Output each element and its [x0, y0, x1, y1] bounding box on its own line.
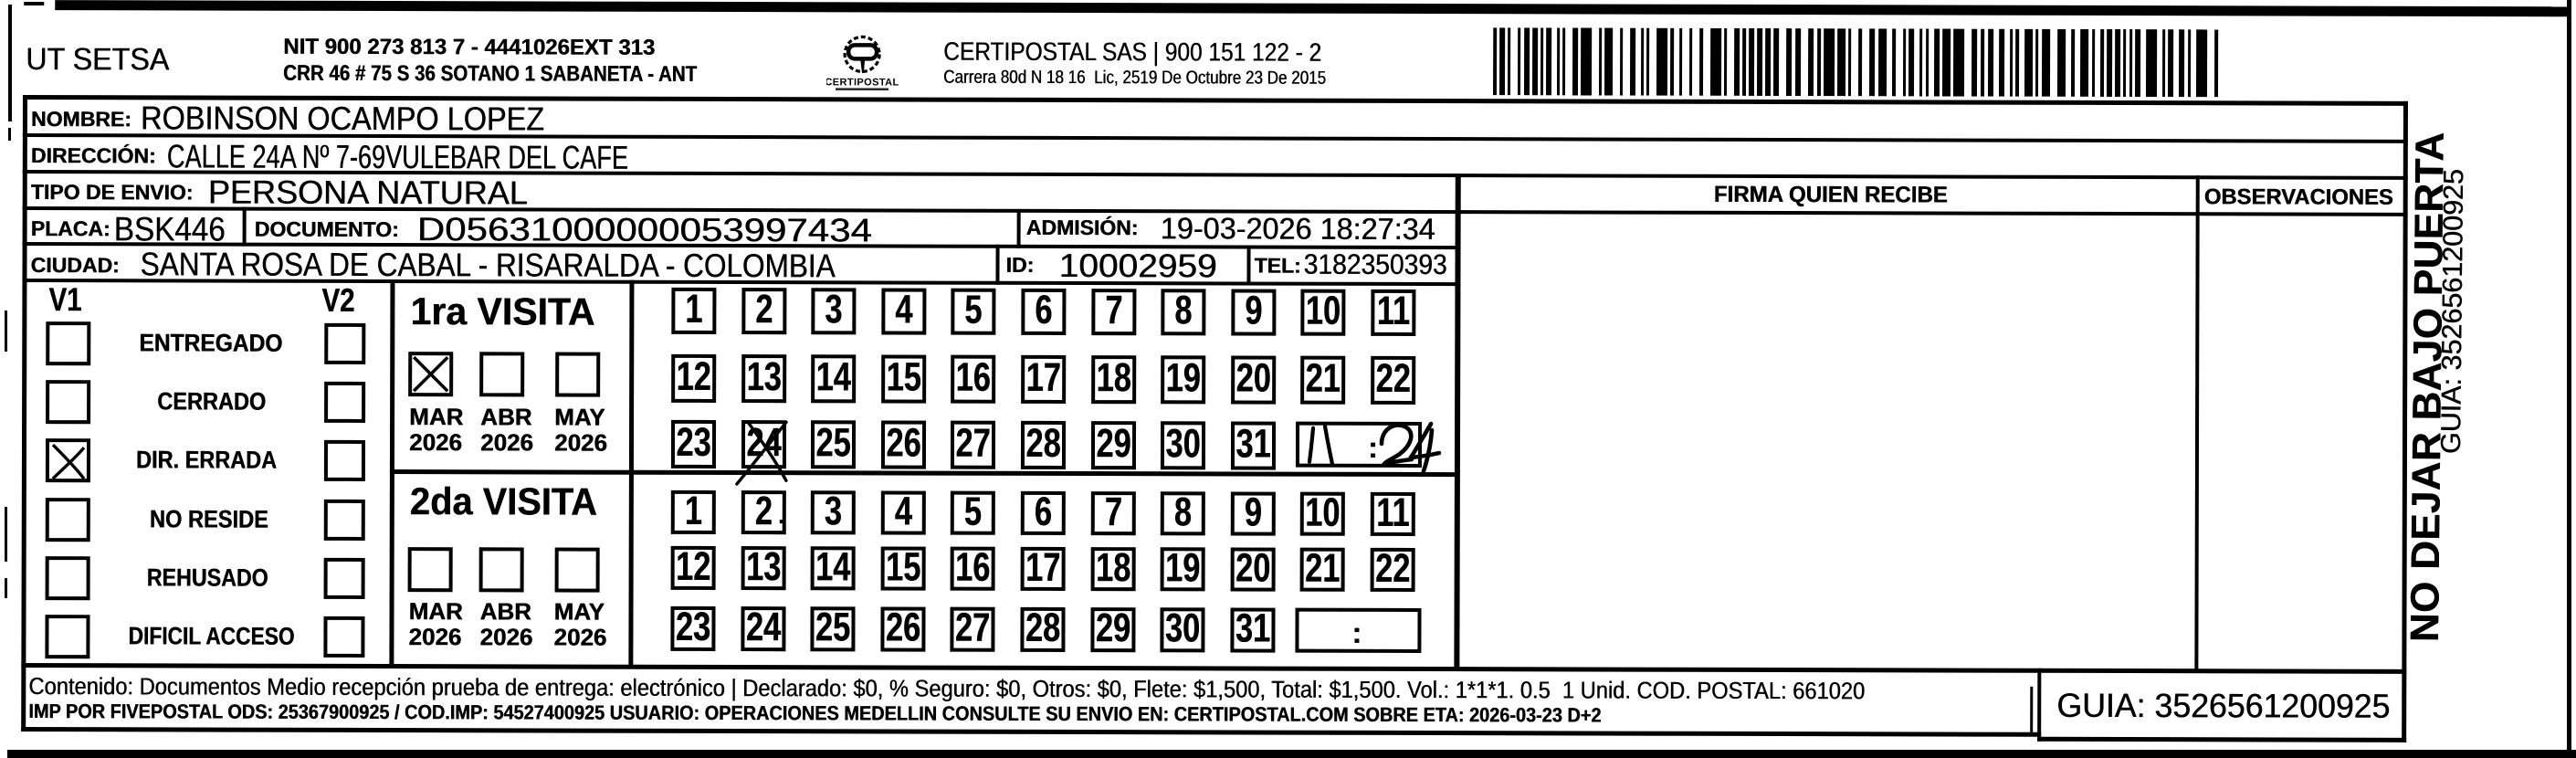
svg-text:CERTIPOSTAL: CERTIPOSTAL [826, 77, 899, 88]
